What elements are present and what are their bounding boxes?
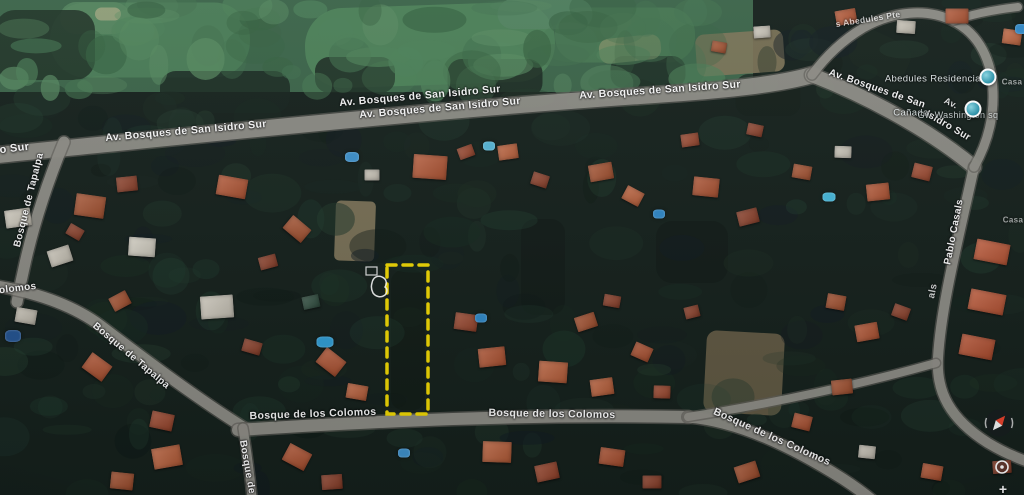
my-location-button[interactable] [996,461,1008,473]
map-controls [0,0,1024,495]
compass-button[interactable] [985,410,1012,437]
map-canvas[interactable]: Isidro SurAv. Bosques de San Isidro SurA… [0,0,1024,495]
zoom-in-button[interactable]: + [995,481,1011,495]
